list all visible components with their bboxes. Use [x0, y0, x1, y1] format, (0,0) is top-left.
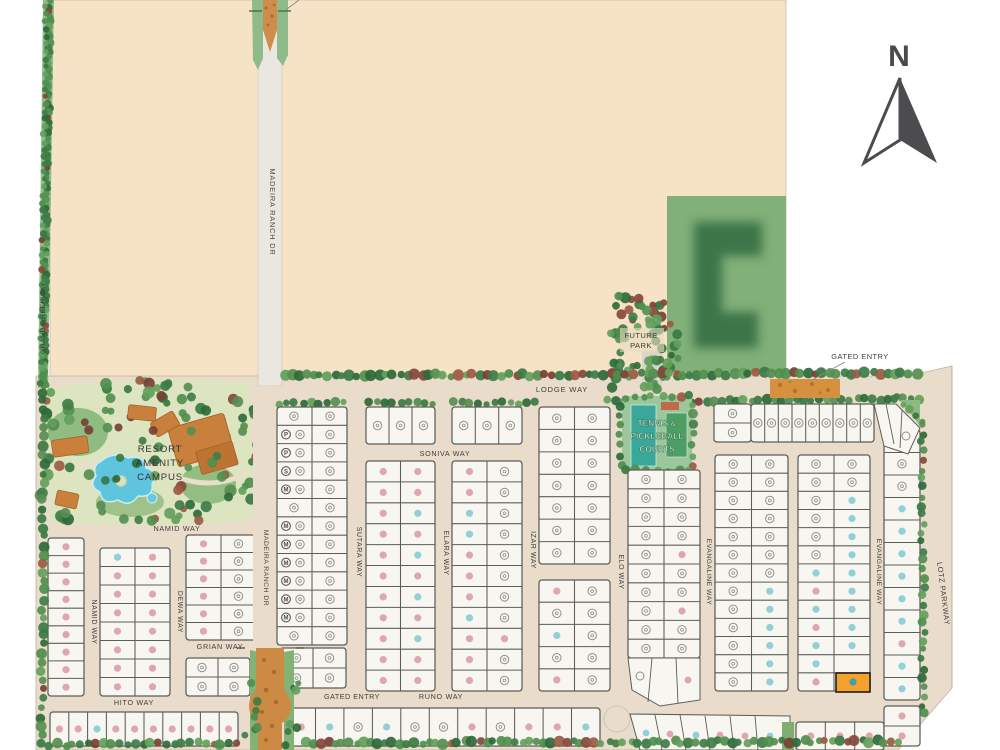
svg-text:RUNO WAY: RUNO WAY — [419, 692, 463, 701]
svg-text:M: M — [284, 561, 289, 567]
svg-text:M: M — [284, 616, 289, 622]
svg-text:NAMID WAY: NAMID WAY — [90, 599, 97, 644]
svg-text:TENNIS &: TENNIS & — [637, 418, 676, 428]
svg-text:COURTS: COURTS — [639, 444, 675, 454]
svg-text:HITO WAY: HITO WAY — [114, 698, 154, 707]
svg-text:M: M — [284, 597, 289, 603]
svg-text:SONIVA WAY: SONIVA WAY — [420, 449, 471, 458]
svg-text:GRIAN WAY: GRIAN WAY — [197, 642, 244, 651]
svg-text:M: M — [284, 524, 289, 530]
svg-text:GATED ENTRY: GATED ENTRY — [831, 352, 888, 361]
svg-text:NAMID WAY: NAMID WAY — [153, 524, 200, 533]
svg-text:ELO WAY: ELO WAY — [617, 554, 624, 589]
svg-text:IZAR WAY: IZAR WAY — [529, 531, 536, 569]
svg-text:FUTURE: FUTURE — [624, 331, 657, 340]
svg-text:P: P — [284, 433, 288, 439]
svg-text:P: P — [284, 451, 288, 457]
svg-text:SUTARA WAY: SUTARA WAY — [355, 527, 362, 578]
svg-text:LODGE WAY: LODGE WAY — [536, 385, 588, 394]
svg-text:GATED ENTRY: GATED ENTRY — [324, 692, 380, 701]
svg-text:MADEIRA RANCH DR: MADEIRA RANCH DR — [268, 168, 277, 255]
svg-text:PARK: PARK — [630, 341, 652, 350]
svg-text:PICKLEBALL: PICKLEBALL — [630, 431, 683, 441]
svg-text:N: N — [888, 40, 910, 73]
svg-text:RESORT: RESORT — [138, 444, 183, 455]
svg-text:AMENITY: AMENITY — [136, 458, 184, 469]
svg-text:S: S — [284, 469, 288, 475]
svg-text:GRAND GREENWAY: GRAND GREENWAY — [40, 282, 47, 354]
svg-text:EVANGALINE WAY: EVANGALINE WAY — [875, 539, 882, 606]
svg-text:M: M — [284, 579, 289, 585]
svg-text:CAMPUS: CAMPUS — [137, 472, 183, 483]
svg-text:DEWA WAY: DEWA WAY — [176, 591, 183, 633]
svg-text:M: M — [284, 488, 289, 494]
svg-text:M: M — [284, 543, 289, 549]
svg-text:ELARA WAY: ELARA WAY — [442, 530, 449, 575]
svg-text:EVANGALINE WAY: EVANGALINE WAY — [705, 539, 712, 606]
svg-text:MADEIRA RANCH DR: MADEIRA RANCH DR — [262, 530, 269, 606]
